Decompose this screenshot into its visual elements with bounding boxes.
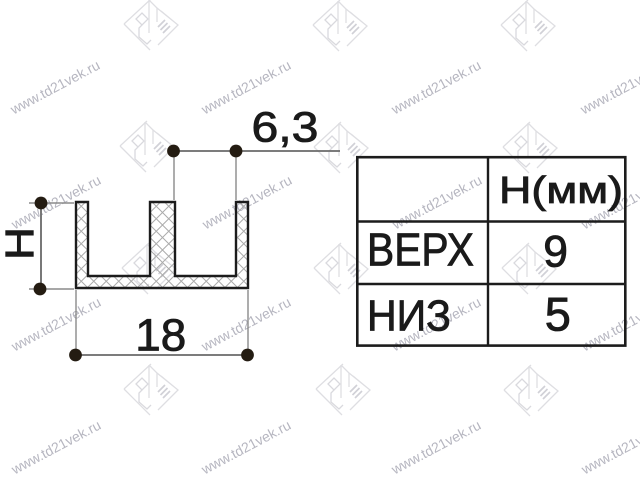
svg-text:5: 5 — [545, 288, 571, 341]
svg-text:9: 9 — [543, 228, 568, 277]
svg-text:www.td21vek.ru: www.td21vek.ru — [198, 294, 294, 355]
svg-text:www.td21vek.ru: www.td21vek.ru — [198, 417, 294, 478]
svg-text:Н(мм): Н(мм) — [499, 170, 623, 212]
svg-text:www.td21vek.ru: www.td21vek.ru — [8, 417, 104, 478]
svg-text:www.td21vek.ru: www.td21vek.ru — [388, 57, 484, 118]
svg-text:НИЗ: НИЗ — [367, 292, 451, 341]
svg-text:18: 18 — [135, 310, 186, 361]
svg-text:www.td21vek.ru: www.td21vek.ru — [578, 417, 640, 478]
svg-text:ВЕРХ: ВЕРХ — [367, 224, 474, 276]
svg-text:6,3: 6,3 — [252, 105, 319, 152]
svg-text:www.td21vek.ru: www.td21vek.ru — [7, 57, 103, 118]
svg-text:www.td21vek.ru: www.td21vek.ru — [388, 417, 484, 478]
svg-text:H: H — [0, 227, 42, 260]
svg-text:www.td21vek.ru: www.td21vek.ru — [8, 294, 104, 355]
svg-text:www.td21vek.ru: www.td21vek.ru — [577, 57, 640, 118]
